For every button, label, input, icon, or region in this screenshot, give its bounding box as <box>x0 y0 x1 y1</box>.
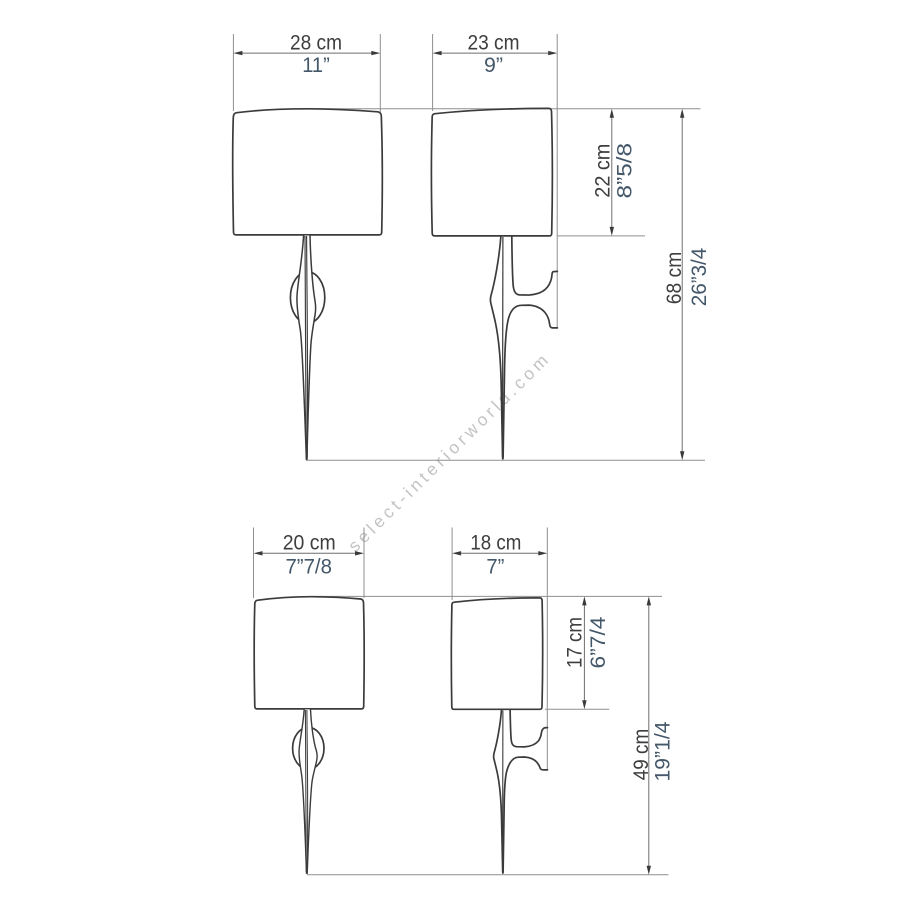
svg-text:49 cm: 49 cm <box>630 729 653 781</box>
svg-text:28 cm: 28 cm <box>290 32 342 55</box>
svg-text:8”5/8: 8”5/8 <box>614 143 637 199</box>
svg-text:18 cm: 18 cm <box>470 531 521 554</box>
svg-text:19”1/4: 19”1/4 <box>652 721 675 781</box>
svg-text:20 cm: 20 cm <box>283 531 336 554</box>
svg-text:9”: 9” <box>484 54 503 77</box>
svg-text:7”7/8: 7”7/8 <box>285 556 332 579</box>
svg-text:7”: 7” <box>486 556 504 579</box>
svg-text:26”3/4: 26”3/4 <box>688 247 711 306</box>
svg-text:68 cm: 68 cm <box>663 252 686 305</box>
svg-text:6”7/4: 6”7/4 <box>587 616 610 668</box>
svg-text:17 cm: 17 cm <box>564 617 587 668</box>
svg-text:22 cm: 22 cm <box>592 144 615 198</box>
svg-text:23 cm: 23 cm <box>468 32 520 55</box>
svg-text:11”: 11” <box>302 54 330 77</box>
